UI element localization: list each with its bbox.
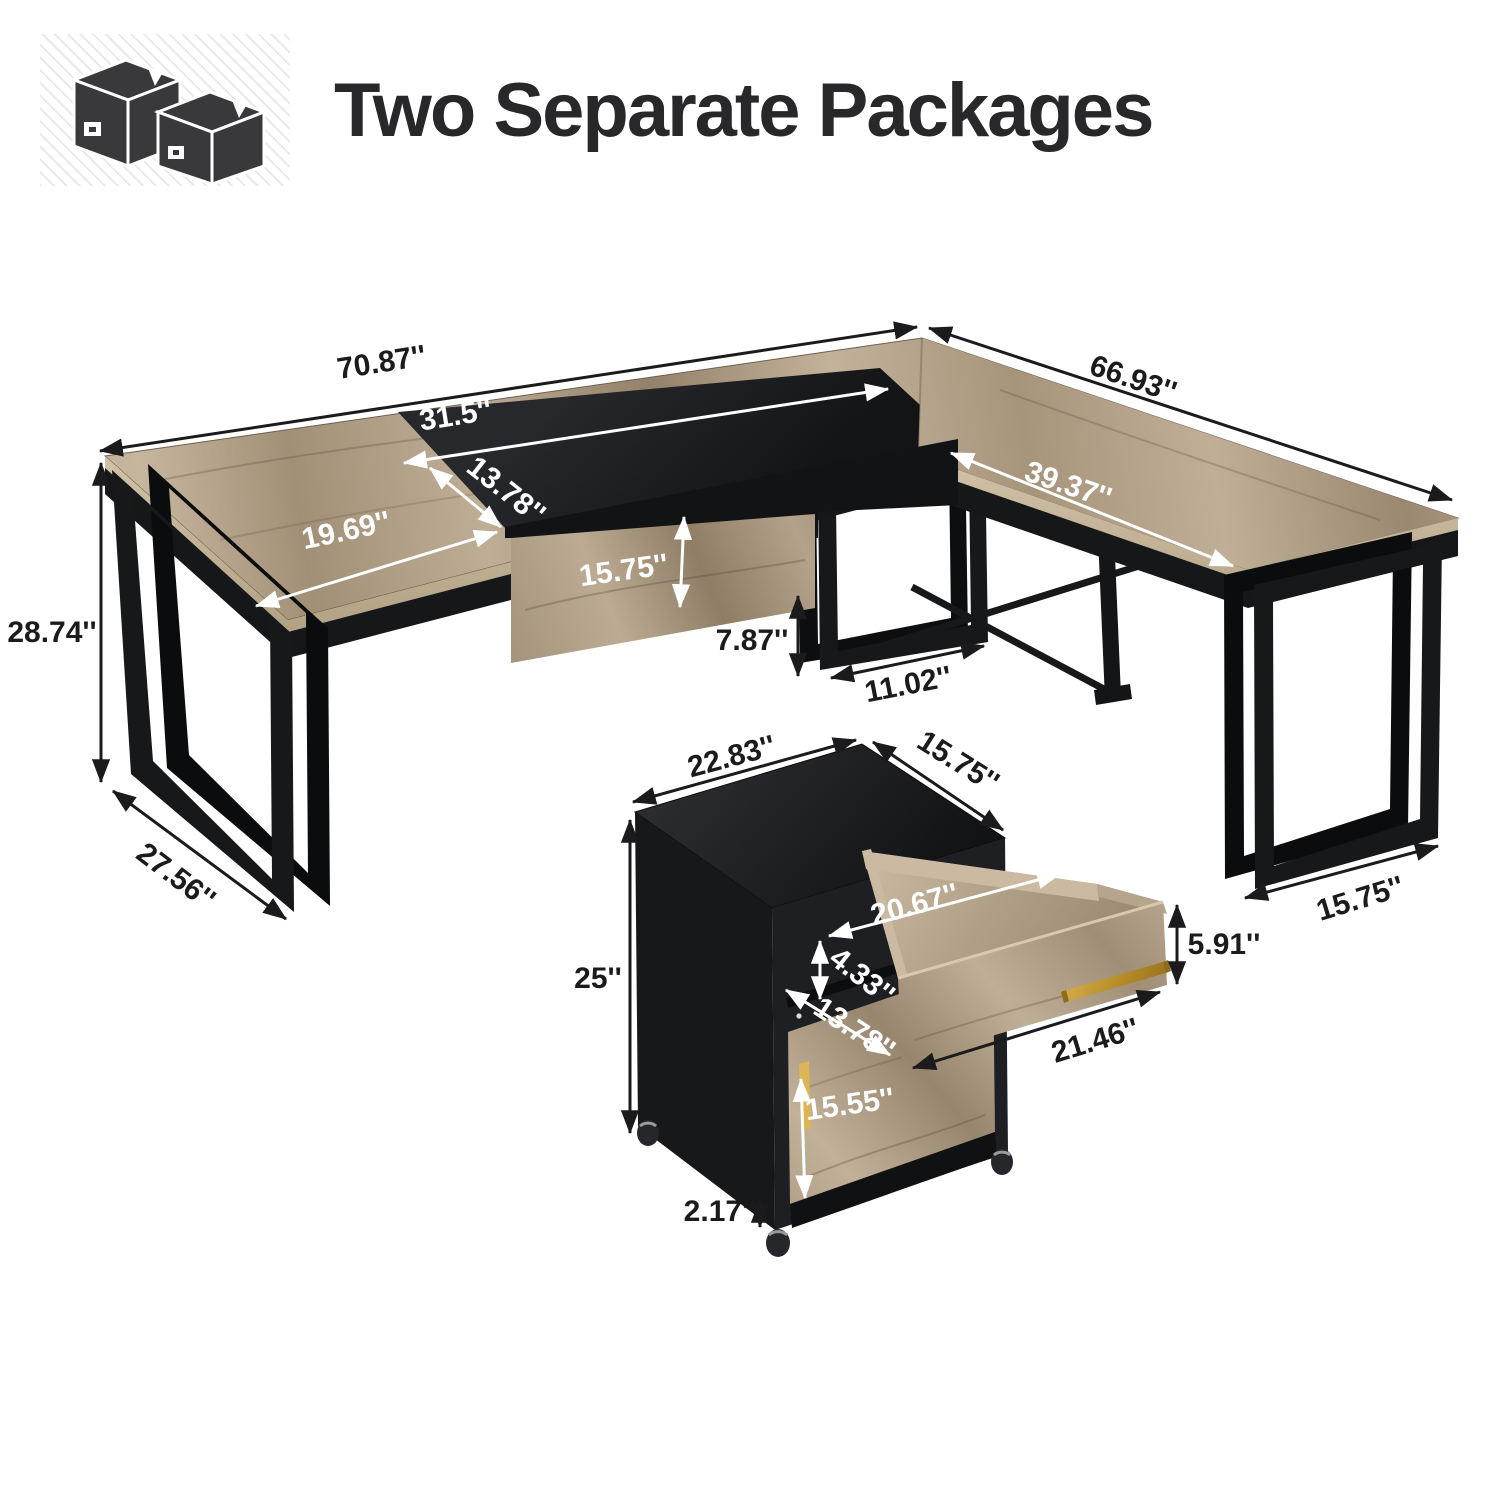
desk-right-leg-frame <box>1224 532 1442 889</box>
dim-caster-height-label: 2.17'' <box>684 1195 757 1228</box>
dim-desk-height-label: 28.74'' <box>7 616 96 649</box>
dim-desk-total-width-label: 70.87'' <box>335 339 428 386</box>
dim-left-leg-depth-label: 27.56'' <box>130 836 221 916</box>
dim-drawer-front-height-label: 5.91'' <box>1188 928 1261 961</box>
product-dimension-diagram: Two Separate Packages <box>0 0 1500 1500</box>
dim-cabinet-height-label: 25'' <box>574 962 622 995</box>
dim-under-clearance-label: 7.87'' <box>716 624 789 657</box>
illustration-canvas: 70.87'' 66.93'' 31.5'' 13.78'' 19.69'' 3… <box>0 0 1500 1500</box>
file-cabinet <box>635 744 1171 1257</box>
dim-right-leg-depth-label: 15.75'' <box>1313 870 1408 928</box>
